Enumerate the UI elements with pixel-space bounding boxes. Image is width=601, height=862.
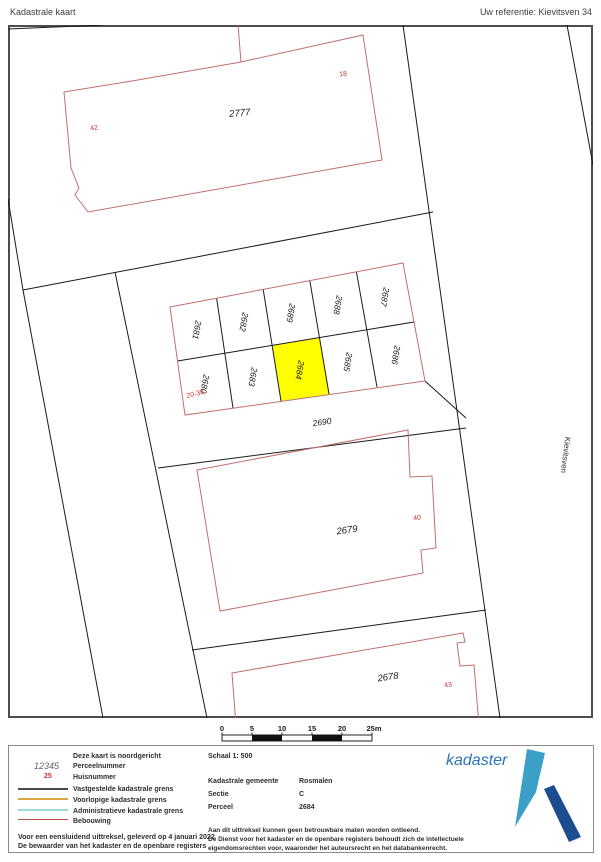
legend-label-administratieve-grens: Administratieve kadastrale grens	[73, 808, 183, 815]
kadaster-logo-text: kadaster	[446, 752, 507, 770]
legend-label-voorlopige-grens: Voorlopige kadastrale grens	[73, 797, 167, 804]
legend-swatch-administratieve-grens	[18, 809, 68, 811]
details-value-gemeente: Rosmalen	[299, 778, 332, 785]
legend-footer-line1: Voor een eensluidend uittreksel, gelever…	[18, 834, 215, 841]
logo-k-light-stroke	[515, 749, 545, 827]
kadastral-extract-page: { "header": { "title": "Kadastrale kaart…	[0, 0, 601, 862]
scale-tick-5: 5	[250, 724, 254, 733]
kadaster-logo-icon	[504, 748, 594, 850]
north-note: Deze kaart is noordgericht	[73, 753, 161, 760]
legend-label-huisnummer: Huisnummer	[73, 774, 116, 781]
legend-swatch-bebouwing	[18, 819, 68, 820]
scale-label: Schaal 1: 500	[208, 753, 252, 760]
scale-tick-0: 0	[220, 724, 224, 733]
disclaimer-line-1: Aan dit uittreksel kunnen geen betrouwba…	[208, 826, 498, 835]
page-title: Kadastrale kaart	[10, 7, 76, 17]
house-number-18: 18	[339, 70, 348, 78]
details-label-gemeente: Kadastrale gemeente	[208, 778, 278, 785]
scale-tick-10: 10	[278, 724, 286, 733]
details-label-sectie: Sectie	[208, 791, 229, 798]
legend-swatch-vastgestelde-grens	[18, 788, 68, 790]
scale-tick-labels: 0 5 10 15 20 25m	[220, 724, 382, 733]
scale-bar: 0 5 10 15 20 25m	[212, 722, 388, 746]
legend-sample-house-number: 25	[44, 773, 52, 780]
scale-bar-segment-dark-1	[252, 735, 282, 741]
disclaimer-line-2: De Dienst voor het kadaster en de openba…	[208, 835, 498, 853]
scale-bar-track	[222, 735, 372, 741]
legend-label-perceelnummer: Perceelnummer	[73, 763, 126, 770]
reference-label: Uw referentie: Kievitsven 34	[480, 7, 592, 17]
scale-tick-20: 20	[338, 724, 346, 733]
legend-label-vastgestelde-grens: Vastgestelde kadastrale grens	[73, 786, 173, 793]
cadastral-map: 2777 2681 2682 2689 2688 2687 2680 2683 …	[8, 25, 593, 718]
details-value-sectie: C	[299, 791, 304, 798]
scale-tick-15: 15	[308, 724, 316, 733]
legend-footer-line2: De bewaarder van het kadaster en de open…	[18, 843, 206, 850]
house-number-43: 43	[444, 681, 453, 689]
scale-tick-25m: 25m	[366, 724, 381, 733]
legend-sample-parcel-number: 12345	[34, 761, 59, 771]
details-value-perceel: 2684	[299, 804, 315, 811]
info-panel: Deze kaart is noordgericht 12345 Perceel…	[8, 745, 594, 853]
legend-label-bebouwing: Bebouwing	[73, 818, 111, 825]
house-number-40: 40	[413, 514, 422, 522]
scale-bar-segment-dark-2	[312, 735, 342, 741]
parcel-label-2777: 2777	[228, 107, 252, 120]
house-number-42: 42	[90, 124, 99, 132]
logo-k-dark-stroke	[544, 785, 581, 842]
details-label-perceel: Perceel	[208, 804, 233, 811]
legend-swatch-voorlopige-grens	[18, 798, 68, 800]
disclaimer-text: Aan dit uittreksel kunnen geen betrouwba…	[208, 826, 498, 853]
